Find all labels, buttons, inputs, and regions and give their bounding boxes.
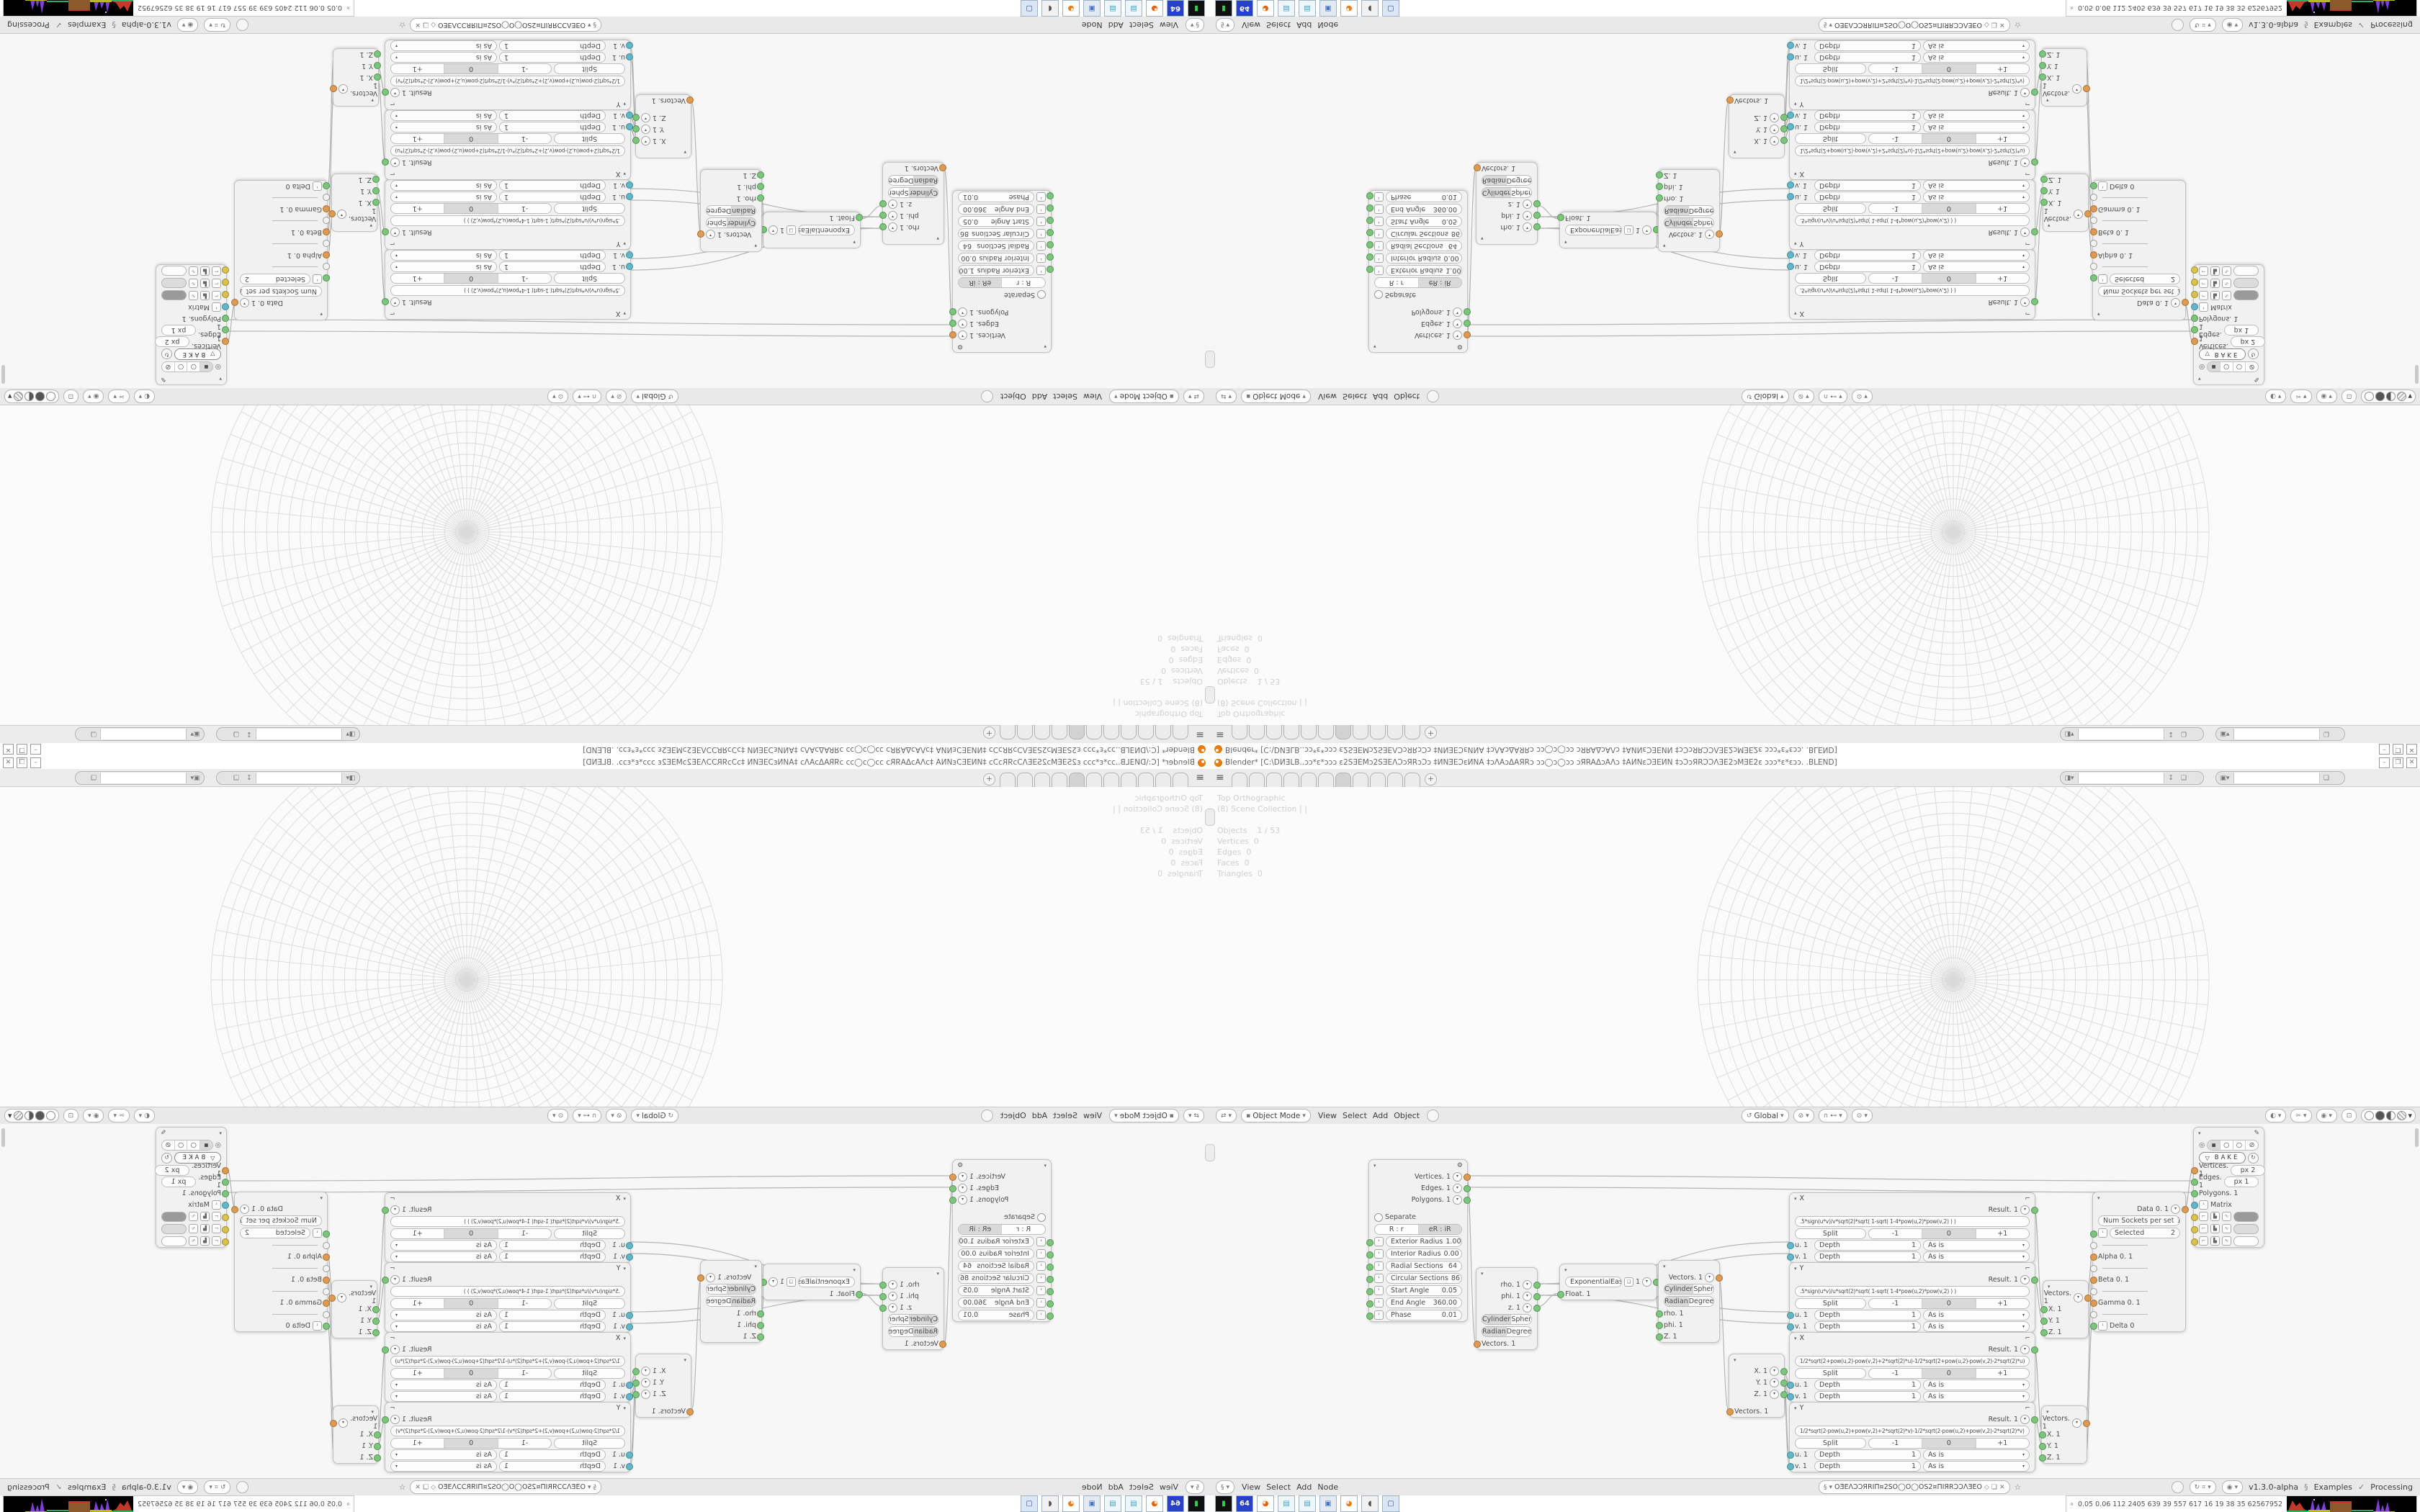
wireframe-shading-icon[interactable] [2365,392,2374,401]
value-field[interactable]: Phase0.01 [1386,192,1462,202]
socket-green[interactable] [1533,1282,1541,1289]
segment-button[interactable]: -1 [1869,204,1922,214]
workspace-tab[interactable] [1086,725,1102,739]
segment-button[interactable]: Degree [889,1327,915,1336]
menu-node[interactable]: Node [1079,1482,1106,1492]
expression-field[interactable]: .5*sign(u*v)/u*sqrt(2)*sqrt( 1-sqrt( 1-4… [1795,1286,2030,1297]
node-expr-y1[interactable]: ▾Y⌐Result. 1▾.5*sign(u*v)/u*sqrt(2)*sqrt… [1789,1262,2035,1333]
scene-name-field[interactable] [2078,773,2164,783]
solid-shading-icon[interactable] [35,1111,45,1120]
copy-icon[interactable]: ❏ [2177,731,2190,738]
scrollbar[interactable] [2415,365,2419,384]
menu-object[interactable]: Object [998,392,1029,401]
material-shading-icon[interactable] [24,392,34,401]
socket-orange[interactable] [2191,1167,2198,1174]
sidebar-toggle-icon[interactable] [1210,686,1215,703]
close-button[interactable]: ✕ [3,744,14,755]
socket-yellow[interactable] [2191,1226,2198,1233]
segment-button[interactable]: -1 [498,135,551,144]
segment-button[interactable]: Sphere [1510,188,1532,197]
socket-green[interactable] [1366,1300,1373,1308]
segment-button[interactable]: Cylinder [1482,188,1510,197]
restore-button[interactable]: ❒ [17,744,27,755]
menu-add[interactable]: Add [1294,1482,1314,1492]
socket-green[interactable] [1366,1288,1373,1295]
socket-green[interactable] [382,1207,390,1214]
node-polar-coords-b[interactable]: ▾Vectors. 1▾CylinderSphereRadianDegreerh… [700,169,762,252]
workspace-tab[interactable] [1353,773,1368,787]
overlay-dropdown[interactable]: ◉▾ [2222,18,2243,32]
gizmo-dropdown[interactable]: ◐▾ [134,1109,155,1122]
scene-name-field[interactable] [256,729,342,739]
app-icon[interactable]: ◕ [1146,1495,1163,1512]
workspace-tab[interactable] [1283,773,1299,787]
socket-orange[interactable] [2182,1206,2189,1213]
socket-green[interactable] [880,200,887,207]
segment-button[interactable]: eR : iR [1418,278,1462,287]
socket-green[interactable] [950,308,957,315]
node-expr-y2[interactable]: ▾Y⌐Result. 1▾1/2*sqrt(2-pow(u,2)+pow(v,2… [385,1402,631,1472]
segment-button[interactable]: -1 [1869,1439,1922,1448]
pin-icon[interactable]: ↧ [243,775,256,782]
display-mode-icon[interactable]: ▪ [2208,1140,2220,1150]
node-combine-b[interactable]: ▾Vectors. 1▾X. 1Y. 1Z. 1 [333,1405,379,1464]
expression-field[interactable]: .5*sign(u*v)/v*sqrt(2)*sqrt( 1-sqrt( 1-4… [1795,1216,2030,1227]
app-icon[interactable]: ▮ [1188,1495,1205,1512]
socket-green[interactable] [2040,176,2048,183]
display-mode-icon[interactable]: ▪ [200,1140,212,1150]
segment-button[interactable]: +1 [391,1229,444,1238]
socket-orange[interactable] [2084,210,2092,217]
socket-teal[interactable] [1787,1312,1794,1319]
expression-field[interactable]: 1/2*sqrt(2-pow(u,2)+pow(v,2)+2*sqrt(2)*v… [1795,1426,2030,1436]
app-icon[interactable]: ▮ [1188,0,1205,17]
socket-green[interactable] [1464,308,1471,315]
socket-green[interactable] [950,320,957,327]
socket-green[interactable] [2031,1346,2038,1354]
node-combine-a[interactable]: ▾Vectors. 1▾X. 1Y. 1Z. 1 [331,174,377,232]
node-params[interactable]: ▾Data 0. 1▾Num Sockets per set1¹Selected… [2092,1192,2186,1332]
node-disc-generator[interactable]: ▾⚙Vertices. 1▾Edges. 1▾Polygons. 1▾Separ… [952,1159,1052,1322]
app-icon[interactable]: ▤ [1104,1495,1121,1512]
socket-green[interactable] [1366,1251,1373,1259]
menu-add[interactable]: Add [1106,1482,1126,1492]
segment-button[interactable]: Degree [1688,1297,1714,1306]
node-combine-b[interactable]: ▾Vectors. 1▾X. 1Y. 1Z. 1 [2041,48,2087,107]
workspace-tab[interactable] [1266,773,1282,787]
segment-button[interactable]: 0 [444,204,498,214]
socket-green[interactable] [633,125,640,132]
refresh-icon[interactable]: ↻ [2248,1153,2259,1164]
gizmo-dropdown[interactable]: ◐▾ [134,390,155,403]
pivot-dropdown[interactable]: ⊘▾ [1793,390,1814,403]
workspace-tab[interactable] [1249,773,1265,787]
workspace-tab[interactable] [1103,773,1119,787]
close-button[interactable]: ✕ [2406,744,2417,755]
socket-green[interactable] [1464,1197,1471,1204]
render-region-icon[interactable]: ⊡ [2341,1109,2357,1122]
shading-mode-buttons[interactable]: ▾ [4,390,59,403]
workspace-tab[interactable] [1121,773,1137,787]
segment-button[interactable]: +1 [1976,135,2029,144]
node-expr-x1[interactable]: ▾X⌐Result. 1▾.5*sign(u*v)/v*sqrt(2)*sqrt… [385,1192,631,1263]
segment-button[interactable]: Radian [1482,176,1506,185]
pivot-dropdown[interactable]: ⊘▾ [606,390,627,403]
viewlayer-selector[interactable]: ▣▾ ❏ [2215,727,2345,741]
socket-green[interactable] [1656,1310,1663,1318]
segment-button[interactable]: Radian [1664,1297,1688,1306]
display-mode-icon[interactable]: ○ [187,1140,200,1150]
tool-circle-icon[interactable] [1427,1110,1439,1122]
socket-yellow[interactable] [2191,267,2198,274]
socket-green[interactable] [382,89,390,96]
socket-green[interactable] [1366,1313,1373,1320]
menu-icon[interactable]: ≡ [1196,772,1204,783]
workspace-tab[interactable] [1301,725,1317,739]
menu-add[interactable]: Add [1294,20,1314,30]
menu-icon[interactable]: ≡ [1196,729,1204,740]
minimize-button[interactable]: – [2379,744,2390,755]
nodetree-breadcrumb[interactable]: §▾OƎEΛƆƆЯRIΠ¤2SO◯O◯OS2¤ΠIЯRƆƆΛƎEO◇❏✕ [1819,1480,2010,1494]
tool-circle-icon[interactable] [236,1481,248,1493]
pivot-dropdown[interactable]: ⊘▾ [1793,1109,1814,1122]
segment-button[interactable]: +1 [391,1439,444,1448]
proportional-edit-dropdown[interactable]: ⊙▾ [547,1109,568,1122]
display-mode-icon[interactable]: ⊘ [2245,363,2258,372]
node-disc-generator[interactable]: ▾⚙Vertices. 1▾Edges. 1▾Polygons. 1▾Separ… [1368,190,1468,353]
node-separate-xyz[interactable]: ▾X. 1▾Y. 1▾Z. 1▾Vectors. 1 [1729,94,1785,158]
close-button[interactable]: ✕ [2406,757,2417,768]
value-field[interactable]: Circular Sections86 [1386,228,1462,239]
segment-button[interactable]: -1 [498,65,551,74]
display-mode-icon[interactable]: ○ [2233,1140,2246,1150]
menu-add[interactable]: Add [1370,392,1391,401]
segment-button[interactable]: 0 [444,274,498,284]
expression-field[interactable]: .5*sign(u*v)/u*sqrt(2)*sqrt( 1-sqrt( 1-4… [390,215,625,226]
segment-button[interactable]: Radian [732,1297,756,1306]
socket-orange[interactable] [2083,85,2090,92]
socket-plain[interactable] [2090,1242,2097,1249]
socket-plain[interactable] [2090,1265,2097,1272]
workspace-tab[interactable] [1017,725,1033,739]
split-button[interactable]: Split [1795,274,1866,284]
menu-select[interactable]: Select [1050,1111,1080,1120]
segment-button[interactable]: -1 [1869,274,1922,284]
socket-green[interactable] [2039,62,2046,69]
segment-button[interactable]: -1 [498,1229,551,1238]
segment-button[interactable]: 0 [444,1439,498,1448]
sidebar-toggle-icon[interactable] [1205,1144,1210,1161]
examples-menu[interactable]: Examples [68,20,106,30]
viewlayer-selector[interactable]: ▣▾ ❏ [2215,771,2345,785]
socket-green[interactable] [1047,1288,1054,1295]
value-field[interactable]: Num Sockets per set1 [2098,1215,2180,1226]
menu-add[interactable]: Add [1370,1111,1391,1120]
expression-field[interactable]: 1/2*sqrt(2+pow(u,2)-pow(v,2)+2*sqrt(2)*u… [390,145,625,156]
node-params[interactable]: ▾Data 0. 1▾Num Sockets per set1¹Selected… [234,1192,328,1332]
pin-icon[interactable]: ↧ [2164,775,2177,782]
processing-menu[interactable]: Processing [7,20,50,30]
node-expr-x1[interactable]: ▾X⌐Result. 1▾.5*sign(u*v)/v*sqrt(2)*sqrt… [385,249,631,320]
socket-green[interactable] [633,137,640,144]
segment-button[interactable]: Cylinder [1664,218,1693,228]
app-icon[interactable]: ◕ [1062,1495,1080,1512]
app-icon[interactable]: ▤ [1299,1495,1316,1512]
socket-green[interactable] [2031,1207,2038,1214]
socket-orange[interactable] [331,1420,338,1427]
node-expr-x2[interactable]: ▾X⌐Result. 1▾1/2*sqrt(2+pow(u,2)-pow(v,2… [385,109,631,180]
value-field[interactable]: End Angle360.00 [958,204,1034,215]
app-icon[interactable]: ▤ [1278,0,1295,17]
app-icon[interactable]: 64 [1167,0,1184,17]
socket-green[interactable] [2039,50,2046,58]
socket-teal[interactable] [2191,1202,2198,1209]
node-polar-coords-b[interactable]: ▾Vectors. 1▾CylinderSphereRadianDegreerh… [1658,169,1720,252]
node-disc-generator[interactable]: ▾⚙Vertices. 1▾Edges. 1▾Polygons. 1▾Separ… [952,190,1052,353]
tool-circle-icon[interactable] [236,19,248,31]
socket-teal[interactable] [1787,263,1794,270]
socket-orange[interactable] [2090,251,2097,258]
socket-green[interactable] [2031,158,2038,166]
material-shading-icon[interactable] [2386,1111,2396,1120]
socket-green[interactable] [1464,1185,1471,1192]
socket-green[interactable] [633,114,640,121]
workspace-tab[interactable] [1034,725,1050,739]
value-field[interactable]: End Angle360.00 [958,1297,1034,1308]
menu-select[interactable]: Select [1050,392,1080,401]
socket-teal[interactable] [1787,1254,1794,1261]
socket-green[interactable] [323,1230,331,1238]
tool-circle-icon[interactable] [2172,1481,2184,1493]
socket-green[interactable] [1557,214,1564,221]
socket-teal[interactable] [1787,1382,1794,1389]
segment-button[interactable]: +1 [391,1369,444,1378]
node-disc-generator[interactable]: ▾⚙Vertices. 1▾Edges. 1▾Polygons. 1▾Separ… [1368,1159,1468,1322]
segment-button[interactable]: R : r [1375,278,1418,287]
tool-circle-icon[interactable] [2172,19,2184,31]
expression-field[interactable]: 1/2*sqrt(2-pow(u,2)+pow(v,2)+2*sqrt(2)*v… [1795,76,2030,86]
nodetree-breadcrumb[interactable]: §▾OƎEΛƆƆЯRIΠ¤2SO◯O◯OS2¤ΠIЯRƆƆΛƎEO◇❏✕ [411,18,602,32]
sidebar-toggle-icon[interactable] [1210,351,1215,368]
split-button[interactable]: Split [554,1298,625,1309]
socket-teal[interactable] [1787,1393,1794,1400]
socket-green[interactable] [1533,212,1541,219]
overlays-dropdown[interactable]: ✂▾ [2290,1109,2311,1122]
segment-button[interactable]: 0 [1922,135,1975,144]
app-icon[interactable]: ◖ [1041,1495,1059,1512]
socket-green[interactable] [382,298,390,305]
viewlayer-selector[interactable]: ▣▾ ❏ [75,771,205,785]
value-field[interactable]: End Angle360.00 [1386,1297,1462,1308]
socket-green[interactable] [1047,1264,1054,1271]
split-button[interactable]: Split [554,1438,625,1449]
segment-button[interactable]: +1 [391,135,444,144]
socket-plain[interactable] [2090,1288,2097,1295]
value-field[interactable]: Start Angle0.05 [958,216,1034,227]
segment-button[interactable]: 0 [444,1229,498,1238]
copy-icon[interactable]: ❏ [2320,731,2333,738]
socket-teal[interactable] [1787,1463,1794,1470]
workspace-tab[interactable] [1017,773,1033,787]
value-field[interactable]: Interior Radius0.00 [958,253,1034,264]
workspace-tab[interactable] [1121,725,1137,739]
socket-teal[interactable] [1787,251,1794,258]
display-mode-icon[interactable]: ⊘ [162,1140,175,1150]
socket-green[interactable] [1780,1391,1788,1398]
scene-selector[interactable]: ◨▾ ↧ ❏ [2060,771,2204,785]
socket-green[interactable] [2191,1190,2198,1197]
minimize-button[interactable]: – [30,757,41,768]
proportional-edit-dropdown[interactable]: ⊙▾ [1852,390,1873,403]
socket-plain[interactable] [2090,263,2097,270]
menu-view[interactable]: View [1239,1482,1263,1492]
value-field[interactable]: Phase0.01 [1386,1310,1462,1320]
scene-selector[interactable]: ◨▾ ↧ ❏ [216,771,360,785]
socket-green[interactable] [1780,137,1788,144]
bake-button[interactable]: ▽BAKE [174,348,221,360]
split-button[interactable]: Split [554,64,625,75]
socket-plain[interactable] [2090,240,2097,247]
expression-field[interactable]: 1/2*sqrt(2+pow(u,2)-pow(v,2)+2*sqrt(2)*u… [1795,1356,2030,1367]
socket-orange[interactable] [232,1206,239,1213]
socket-green[interactable] [1366,230,1373,237]
split-button[interactable]: Split [554,1368,625,1379]
socket-green[interactable] [880,1282,887,1289]
scene-name-field[interactable] [256,773,342,783]
segment-button[interactable]: +1 [1976,204,2029,214]
menu-view[interactable]: View [1157,20,1181,30]
copy-icon[interactable]: ❏ [2177,775,2190,782]
segment-button[interactable]: 0 [444,1369,498,1378]
app-icon[interactable]: ▤ [1299,0,1316,17]
solid-shading-icon[interactable] [35,392,45,401]
socket-green[interactable] [880,212,887,219]
socket-orange[interactable] [698,230,705,238]
menu-object[interactable]: Object [1391,1111,1422,1120]
display-mode-icon[interactable]: ○ [175,363,188,372]
socket-green[interactable] [1047,1239,1054,1246]
expression-field[interactable]: .5*sign(u*v)/v*sqrt(2)*sqrt( 1-sqrt( 1-4… [1795,285,2030,296]
socket-green[interactable] [1533,1293,1541,1300]
refresh-icon[interactable]: ↻ [161,349,172,360]
display-mode-icon[interactable]: ⊘ [162,363,175,372]
socket-green[interactable] [950,1185,957,1192]
segment-button[interactable]: +1 [1976,65,2029,74]
socket-green[interactable] [633,1380,640,1387]
menu-add[interactable]: Add [1029,392,1050,401]
proportional-edit-dropdown[interactable]: ⊙▾ [1852,1109,1873,1122]
node-expr-y2[interactable]: ▾Y⌐Result. 1▾1/2*sqrt(2-pow(u,2)+pow(v,2… [385,40,631,110]
menu-node[interactable]: Node [1314,20,1341,30]
split-button[interactable]: Split [554,204,625,215]
overlay-dropdown[interactable]: ◉▾ [2222,1480,2243,1494]
display-mode-icon[interactable]: ▪ [2208,363,2220,372]
socket-yellow[interactable] [223,1226,230,1233]
editor-type-button[interactable]: ⇄▾ [1183,390,1204,403]
node-expr-y1[interactable]: ▾Y⌐Result. 1▾.5*sign(u*v)/u*sqrt(2)*sqrt… [1789,179,2035,250]
node-easing[interactable]: ▾ExponentialEaseIn▾❏1▾Float. 1 [763,212,861,248]
node-editor[interactable]: ▾⚙Vertices. 1▾Edges. 1▾Polygons. 1▾Separ… [0,34,1210,388]
value-field[interactable]: Radial Sections64 [1386,1261,1462,1272]
value-field[interactable]: Exterior Radius1.00 [958,1236,1034,1247]
xray-dropdown[interactable]: ◉▾ [2316,1109,2337,1122]
socket-green[interactable] [382,1277,390,1284]
sidebar-toggle-icon[interactable] [1205,686,1210,703]
socket-green[interactable] [633,1368,640,1375]
snap-dropdown[interactable]: ∩⊷▾ [573,1109,601,1122]
xray-dropdown[interactable]: ◉▾ [83,390,104,403]
pin-icon[interactable]: ☆ [2015,1482,2022,1492]
viewport-3d[interactable]: Top Orthographic (8) Scene Collection | … [0,405,1210,725]
workspace-tab[interactable] [1069,725,1085,739]
node-easing[interactable]: ▾ExponentialEaseIn▾❏1▾Float. 1 [763,1264,861,1300]
node-expr-y1[interactable]: ▾Y⌐Result. 1▾.5*sign(u*v)/u*sqrt(2)*sqrt… [385,1262,631,1333]
orientation-dropdown[interactable]: ↺Global▾ [631,1109,678,1122]
segment-button[interactable]: 0 [444,135,498,144]
material-shading-icon[interactable] [2386,392,2396,401]
app-icon[interactable]: 64 [1236,0,1253,17]
menu-select[interactable]: Select [1126,20,1157,30]
expression-field[interactable]: .5*sign(u*v)/u*sqrt(2)*sqrt( 1-sqrt( 1-4… [390,1286,625,1297]
socket-green[interactable] [2031,1277,2038,1284]
segment-button[interactable]: Degree [1506,176,1532,185]
app-icon[interactable]: ▣ [1083,0,1101,17]
shading-mode-buttons[interactable]: ▾ [4,1109,59,1122]
orientation-dropdown[interactable]: ↺Global▾ [1742,390,1789,403]
node-bake-output[interactable]: ▾✎◎▪○○⊘▽BAKE↻Vertices. 1px 2Edges. 1px 1… [156,1127,227,1248]
socket-yellow[interactable] [2191,279,2198,287]
socket-teal[interactable] [1787,112,1794,119]
socket-yellow[interactable] [2191,292,2198,299]
socket-green[interactable] [2031,1416,2038,1423]
snap-dropdown[interactable]: ∩⊷▾ [573,390,601,403]
app-icon[interactable]: ▣ [1319,0,1337,17]
wireframe-shading-icon[interactable] [46,392,55,401]
node-editor[interactable]: ▾⚙Vertices. 1▾Edges. 1▾Polygons. 1▾Separ… [1210,1124,2420,1478]
snap-dropdown[interactable]: ∩⊷▾ [1819,390,1847,403]
segment-button[interactable]: Degree [1506,1327,1532,1336]
refresh-icon[interactable]: ↻ [2248,349,2259,360]
socket-green[interactable] [1780,1380,1788,1387]
solid-shading-icon[interactable] [2375,392,2385,401]
socket-green[interactable] [1366,193,1373,200]
expression-field[interactable]: .5*sign(u*v)/v*sqrt(2)*sqrt( 1-sqrt( 1-4… [390,285,625,296]
socket-green[interactable] [1366,254,1373,261]
socket-orange[interactable] [1474,164,1481,171]
socket-green[interactable] [1366,1239,1373,1246]
xray-dropdown[interactable]: ◉▾ [83,1109,104,1122]
node-editor[interactable]: ▾⚙Vertices. 1▾Edges. 1▾Polygons. 1▾Separ… [1210,34,2420,388]
value-field[interactable]: Phase0.01 [958,192,1034,202]
sidebar-toggle-icon[interactable] [1205,809,1210,826]
overlays-dropdown[interactable]: ✂▾ [108,1109,129,1122]
snapping-dropdown[interactable]: ↻⌗▾ [204,18,230,32]
socket-green[interactable] [2039,1443,2046,1450]
editor-type-button[interactable]: §▾ [1186,1480,1204,1494]
socket-orange[interactable] [1726,96,1734,104]
node-polar-coords-a[interactable]: ▾rho. 1▾phi. 1▾z. 1▾CylinderSphereRadian… [1476,1267,1538,1350]
bake-button[interactable]: ▽BAKE [2199,348,2246,360]
socket-orange[interactable] [2191,338,2198,345]
segment-button[interactable]: -1 [498,1299,551,1308]
socket-green[interactable] [1047,1251,1054,1259]
socket-orange[interactable] [2090,228,2097,235]
app-icon[interactable]: ◕ [1257,1495,1274,1512]
node-expr-x1[interactable]: ▾X⌐Result. 1▾.5*sign(u*v)/v*sqrt(2)*sqrt… [1789,1192,2035,1263]
socket-green[interactable] [2039,73,2046,81]
socket-orange[interactable] [1726,1408,1734,1416]
socket-plain[interactable] [2090,1311,2097,1318]
